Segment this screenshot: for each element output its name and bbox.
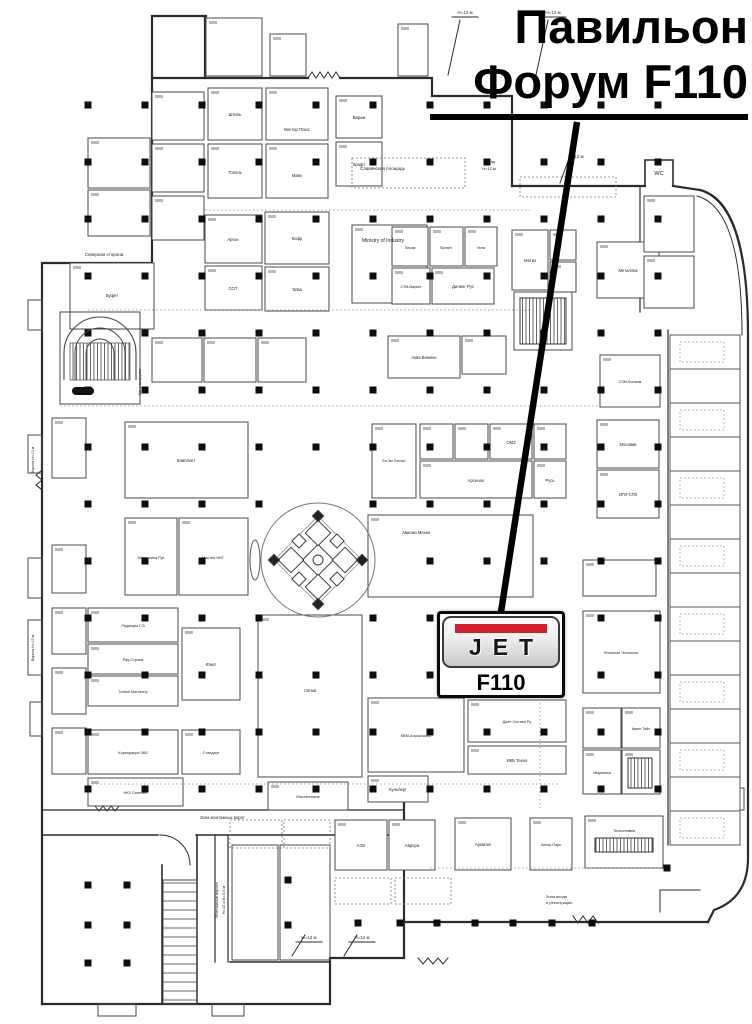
pillar-dot <box>256 501 263 508</box>
stand-number-mark <box>128 521 136 524</box>
map-label: Дилинг Рус <box>452 284 474 289</box>
pillar-dot <box>427 786 434 793</box>
open-area <box>230 820 282 848</box>
pillar-dot <box>484 273 491 280</box>
pillar-dot <box>484 501 491 508</box>
pillar-dot <box>355 920 362 927</box>
stand-number-mark <box>586 753 594 756</box>
callout-line <box>501 122 577 612</box>
pillar-dot <box>85 501 92 508</box>
booth <box>644 196 694 252</box>
stand-number-mark <box>423 427 431 430</box>
pillar-dot <box>397 920 404 927</box>
stand-number-mark <box>458 821 466 824</box>
map-label: Мастен-НБТ <box>202 556 224 560</box>
map-label: Медиатика <box>593 771 611 775</box>
pillar-dot <box>199 729 206 736</box>
map-label: Вираж <box>353 115 366 120</box>
stand-number-mark <box>55 671 63 674</box>
wall <box>95 806 119 811</box>
stand-number-mark <box>586 614 594 617</box>
booth <box>152 92 204 140</box>
stand-number-mark <box>208 269 216 272</box>
map-label: Кульберг <box>389 787 407 792</box>
map-label: Turkish Machinery <box>118 690 147 694</box>
stand-number-mark <box>468 230 476 233</box>
open-area <box>284 820 330 848</box>
pillar-dot <box>655 444 662 451</box>
stand-number-mark <box>395 271 403 274</box>
pillar-dot <box>85 444 92 451</box>
pillar-dot <box>370 615 377 622</box>
pillar-dot <box>285 922 292 929</box>
map-label: Мастенников <box>296 795 319 799</box>
booth <box>52 668 86 714</box>
pillar-dot <box>427 159 434 166</box>
map-label: Ministry of Industry <box>362 238 404 244</box>
pillar-dot <box>256 729 263 736</box>
title-line1: Павильон <box>430 0 748 55</box>
stair-block <box>628 758 652 788</box>
map-label: Зона выгрузки <box>137 369 142 396</box>
stand-number-mark <box>600 473 608 476</box>
booth <box>644 256 694 308</box>
pillar-dot <box>85 882 92 889</box>
map-label: Штиль <box>229 112 243 117</box>
map-label: Крафт <box>353 162 365 167</box>
fountain-ornament-icon <box>250 503 375 617</box>
pillar-dot <box>598 387 605 394</box>
map-label: Металлик <box>619 268 638 273</box>
pillar-dot <box>598 159 605 166</box>
pillar-dot <box>85 729 92 736</box>
pillar-dot <box>199 615 206 622</box>
pillar-dot <box>199 102 206 109</box>
stand-number-mark <box>185 631 193 634</box>
map-label: СЗМ-Консим <box>619 380 642 384</box>
stand-number-mark <box>209 21 217 24</box>
booth <box>88 190 150 236</box>
pillar-dot <box>313 444 320 451</box>
stand-number-mark <box>401 27 409 30</box>
pillar-dot <box>598 216 605 223</box>
stand-number-mark <box>395 230 403 233</box>
pillar-dot <box>313 330 320 337</box>
stand-number-mark <box>268 270 276 273</box>
pillar-dot <box>541 387 548 394</box>
pillar-dot <box>655 615 662 622</box>
booth <box>52 545 86 593</box>
stand-number-mark <box>73 266 81 269</box>
stand-number-mark <box>55 421 63 424</box>
pillar-dot <box>142 159 149 166</box>
map-label: Тополь <box>228 170 243 175</box>
stand-number-mark <box>273 37 281 40</box>
stand-number-mark <box>339 99 347 102</box>
stand-number-mark <box>371 701 379 704</box>
booth <box>206 18 262 76</box>
pillar-dot <box>598 273 605 280</box>
map-label: Арматек <box>475 842 491 847</box>
stand-number-mark <box>515 233 523 236</box>
stand-number-mark <box>91 679 99 682</box>
pillar-dot <box>655 786 662 793</box>
map-label: Кофр <box>292 236 303 241</box>
map-label: Рау-Строев <box>123 658 143 662</box>
map-label: Славянская площадь <box>360 166 406 171</box>
booth <box>266 144 328 198</box>
pillar-dot <box>256 444 263 451</box>
pillar-dot <box>124 882 131 889</box>
room <box>98 1004 136 1016</box>
booth <box>52 608 86 654</box>
stand-number-mark <box>471 703 479 706</box>
map-label: Сигма <box>304 688 317 693</box>
pillar-dot <box>199 330 206 337</box>
pillar-dot <box>549 920 556 927</box>
pillar-dot <box>598 729 605 736</box>
map-label: Технолемма <box>613 829 636 833</box>
booth <box>52 728 86 774</box>
stand-number-mark <box>55 731 63 734</box>
map-label: H=12 и B=3,5 м <box>221 885 226 914</box>
stand-number-mark <box>465 339 473 342</box>
pillar-dot <box>256 102 263 109</box>
pillar-dot <box>256 159 263 166</box>
map-label: Вектор Плюс <box>284 127 309 132</box>
wall <box>660 890 700 912</box>
pillar-dot <box>142 729 149 736</box>
pillar-dot <box>85 216 92 223</box>
room <box>280 845 330 960</box>
map-label: СОТ <box>229 286 238 291</box>
pillar-dot <box>589 920 596 927</box>
stand-number-mark <box>471 749 479 752</box>
pillar-dot <box>313 102 320 109</box>
pillar-dot <box>472 920 479 927</box>
pillar-dot <box>199 159 206 166</box>
title-line2: Форум F110 <box>430 55 748 110</box>
pillar-dot <box>370 786 377 793</box>
pillar-dot <box>370 729 377 736</box>
pillar-dot <box>598 444 605 451</box>
stand-f110-marker[interactable]: JET F110 <box>437 611 565 698</box>
room <box>28 558 42 598</box>
stall <box>670 335 740 369</box>
pillar-dot <box>484 444 491 451</box>
pillar-dot <box>199 501 206 508</box>
jet-logo: JET <box>442 616 560 668</box>
pillar-dot <box>541 786 548 793</box>
pillar-dot <box>370 444 377 451</box>
pillar-dot <box>541 729 548 736</box>
map-label: ИКБ Техно <box>507 758 528 763</box>
floor-plan: Северная сторонаБуфетСлавянская площадьВ… <box>0 0 752 1024</box>
stand-number-mark <box>271 785 279 788</box>
pillar-dot <box>427 558 434 565</box>
stall <box>670 471 740 505</box>
pillar-dot <box>484 729 491 736</box>
stand-number-mark <box>55 548 63 551</box>
pillar-dot <box>256 615 263 622</box>
stand-number-mark <box>91 781 99 784</box>
pillar-dot <box>510 920 517 927</box>
map-label: Ворота H=12 м <box>31 446 35 473</box>
stand-number: F110 <box>440 670 562 696</box>
stand-number-mark <box>338 823 346 826</box>
stand-number-mark <box>371 518 379 521</box>
map-label: КВМ-Аэрокосмос <box>401 734 431 738</box>
stall <box>670 403 740 437</box>
stall <box>670 573 740 607</box>
stand-number-mark <box>586 711 594 714</box>
pillar-dot <box>427 444 434 451</box>
pillar-dot <box>598 672 605 679</box>
pillar-dot <box>199 216 206 223</box>
map-label: Би-Эм Сигнал <box>383 459 406 463</box>
map-label: Зона входа <box>546 894 568 899</box>
pillar-dot <box>313 216 320 223</box>
stand-number-mark <box>625 711 633 714</box>
pillar-dot <box>370 102 377 109</box>
wall <box>512 186 700 190</box>
pillar-dot <box>199 387 206 394</box>
stand-number-mark <box>185 733 193 736</box>
stall <box>670 641 740 675</box>
pillar-dot <box>313 273 320 280</box>
pillar-dot <box>199 672 206 679</box>
stall <box>670 743 740 777</box>
pillar-dot <box>142 216 149 223</box>
map-label: Выезд <box>483 159 495 164</box>
pillar-dot <box>85 558 92 565</box>
booth <box>258 338 306 382</box>
room <box>212 1004 244 1016</box>
booth <box>398 24 428 76</box>
pillar-dot <box>124 960 131 967</box>
stall <box>670 607 740 641</box>
map-label: Арсенал <box>468 478 485 483</box>
booth <box>88 138 150 188</box>
pillar-dot <box>285 877 292 884</box>
map-label: Северная сторона <box>85 252 124 257</box>
stall <box>670 811 740 845</box>
pillar-dot <box>598 558 605 565</box>
stand-number-mark <box>339 145 347 148</box>
pillar-dot <box>85 960 92 967</box>
pillar-dot <box>427 273 434 280</box>
stand-number-mark <box>91 611 99 614</box>
stand-number-mark <box>355 228 363 231</box>
map-label: H=12 м <box>301 935 316 940</box>
pillar-dot <box>256 273 263 280</box>
stand-number-mark <box>269 91 277 94</box>
pillar-dot <box>427 387 434 394</box>
map-label: Русь <box>545 478 555 483</box>
pillar-dot <box>655 159 662 166</box>
stand-number-mark <box>155 147 163 150</box>
stand-number-mark <box>625 753 633 756</box>
stall <box>670 777 740 811</box>
wall <box>160 835 190 865</box>
wall <box>308 72 340 78</box>
stall <box>670 539 740 573</box>
pillar-dot <box>85 786 92 793</box>
pillar-dot <box>370 159 377 166</box>
pillar-dot <box>655 558 662 565</box>
map-label: НКЗ Сантехн <box>124 791 147 795</box>
page-title: Павильон Форум F110 <box>430 0 748 120</box>
stand-number-mark <box>493 427 501 430</box>
stand-number-mark <box>91 193 99 196</box>
map-label: Зона монтажных ворот <box>200 815 245 820</box>
pillar-dot <box>664 865 671 872</box>
stand-number-mark <box>603 358 611 361</box>
map-label: СТМ-Маркет <box>400 285 421 289</box>
map-label: Аврора <box>405 843 420 848</box>
pillar-dot <box>655 387 662 394</box>
map-label: WC <box>654 171 663 177</box>
stand-number-mark <box>433 230 441 233</box>
pillar-dot <box>655 672 662 679</box>
map-label: Юнит <box>206 662 217 667</box>
stand-number-mark <box>600 245 608 248</box>
map-label: Авант Тайл <box>632 727 651 731</box>
stand-number-mark <box>600 423 608 426</box>
map-label: и регистрации <box>546 900 573 905</box>
pillar-dot <box>427 672 434 679</box>
pillar-dot <box>199 273 206 280</box>
map-label: Монтажные ворота <box>214 881 219 917</box>
stall <box>670 709 740 743</box>
pillar-dot <box>598 330 605 337</box>
map-label: Автор Парк <box>541 843 561 847</box>
pillar-dot <box>256 216 263 223</box>
pillar-dot <box>541 558 548 565</box>
pillar-dot <box>541 159 548 166</box>
stall <box>670 369 740 403</box>
map-label: Мосавив <box>619 442 637 447</box>
stand-number-mark <box>91 647 99 650</box>
pillar-dot <box>541 273 548 280</box>
pillar-dot <box>313 672 320 679</box>
pillar-dot <box>370 672 377 679</box>
pillar-dot <box>655 501 662 508</box>
stand-number-mark <box>211 91 219 94</box>
pillar-dot <box>256 786 263 793</box>
stand-number-mark <box>155 341 163 344</box>
stand-number-mark <box>268 215 276 218</box>
stand-number-mark <box>207 341 215 344</box>
pillar-dot <box>541 501 548 508</box>
stand-number-mark <box>91 141 99 144</box>
pillar-dot <box>85 615 92 622</box>
stairs <box>163 880 197 1004</box>
pillar-dot <box>124 922 131 929</box>
stand-number-mark <box>391 339 399 342</box>
pillar-dot <box>484 216 491 223</box>
open-area <box>335 878 391 904</box>
stand-number-mark <box>375 427 383 430</box>
pillar-dot <box>427 330 434 337</box>
pillar-dot <box>655 216 662 223</box>
pillar-dot <box>484 786 491 793</box>
stand-number-mark <box>586 563 594 566</box>
pillar-dot <box>142 615 149 622</box>
pillar-dot <box>142 444 149 451</box>
jet-logo-text: JET <box>444 633 558 662</box>
pillar-dot <box>142 330 149 337</box>
pillar-dot <box>541 216 548 223</box>
booth <box>152 196 204 240</box>
stand-number-mark <box>211 147 219 150</box>
map-label: Металлика Рус <box>138 556 165 560</box>
map-label: Аква Вижион <box>411 355 437 360</box>
stand-number-mark <box>91 733 99 736</box>
pillar-dot <box>370 501 377 508</box>
pillar-dot <box>85 102 92 109</box>
booth <box>52 418 86 478</box>
pillar-dot <box>85 159 92 166</box>
pillar-dot <box>427 501 434 508</box>
map-label: Джет Систем Ру <box>503 720 532 724</box>
stand-number-mark <box>371 779 379 782</box>
pillar-dot <box>655 729 662 736</box>
stall <box>670 437 740 471</box>
pillar-dot <box>370 387 377 394</box>
booth <box>270 34 306 76</box>
booth <box>152 144 204 192</box>
booth <box>152 338 202 382</box>
pillar-dot <box>313 159 320 166</box>
stand-number-mark <box>261 341 269 344</box>
pillar-dot <box>655 330 662 337</box>
map-label: Элва <box>292 287 302 292</box>
map-label: Палант <box>440 246 453 250</box>
pillar-dot <box>484 330 491 337</box>
room <box>30 702 42 736</box>
pillar-dot <box>370 330 377 337</box>
stand-number-mark <box>423 464 431 467</box>
stand-number-mark <box>533 821 541 824</box>
booth <box>258 615 362 777</box>
map-label: Элком <box>405 246 416 250</box>
wall <box>418 958 448 964</box>
pillar-dot <box>142 501 149 508</box>
map-label: Стандарт <box>203 751 220 755</box>
pillar-dot <box>85 672 92 679</box>
map-label: Ворота H=12 м <box>31 634 35 661</box>
stand-number-mark <box>55 611 63 614</box>
pillar-dot <box>541 444 548 451</box>
stair-block <box>595 838 653 852</box>
map-label: Аргон <box>227 237 239 242</box>
pillar-dot <box>142 387 149 394</box>
map-label: Метиз <box>524 258 536 263</box>
pillar-dot <box>256 387 263 394</box>
map-label: Ависма Механ <box>402 530 431 535</box>
map-label: Нота <box>477 246 485 250</box>
stand-number-mark <box>647 199 655 202</box>
pillar-dot <box>427 615 434 622</box>
stand-number-mark <box>269 147 277 150</box>
stall <box>670 675 740 709</box>
booth <box>204 338 256 382</box>
stand-number-mark <box>392 823 400 826</box>
map-label: ОМЗ <box>506 440 516 445</box>
stall <box>670 505 740 539</box>
pillar-dot <box>199 444 206 451</box>
